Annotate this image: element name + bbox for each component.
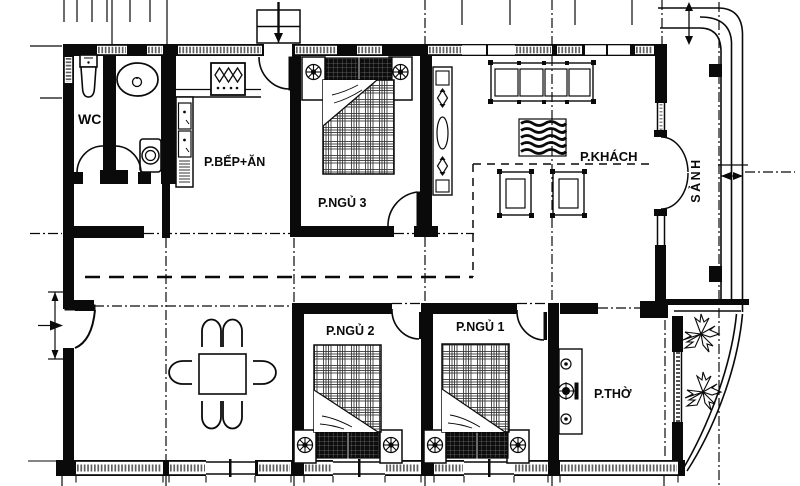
svg-text:P.THỜ: P.THỜ [594,386,632,401]
svg-text:P.NGỦ 1: P.NGỦ 1 [456,319,504,334]
svg-text:SẢNH: SẢNH [688,157,703,202]
svg-text:WC: WC [78,111,101,127]
svg-text:P.NGỦ 2: P.NGỦ 2 [326,323,374,338]
svg-text:P.KHÁCH: P.KHÁCH [580,149,638,164]
svg-text:P.NGỦ 3: P.NGỦ 3 [318,195,366,210]
svg-text:P.BẾP+ĂN: P.BẾP+ĂN [204,154,265,169]
